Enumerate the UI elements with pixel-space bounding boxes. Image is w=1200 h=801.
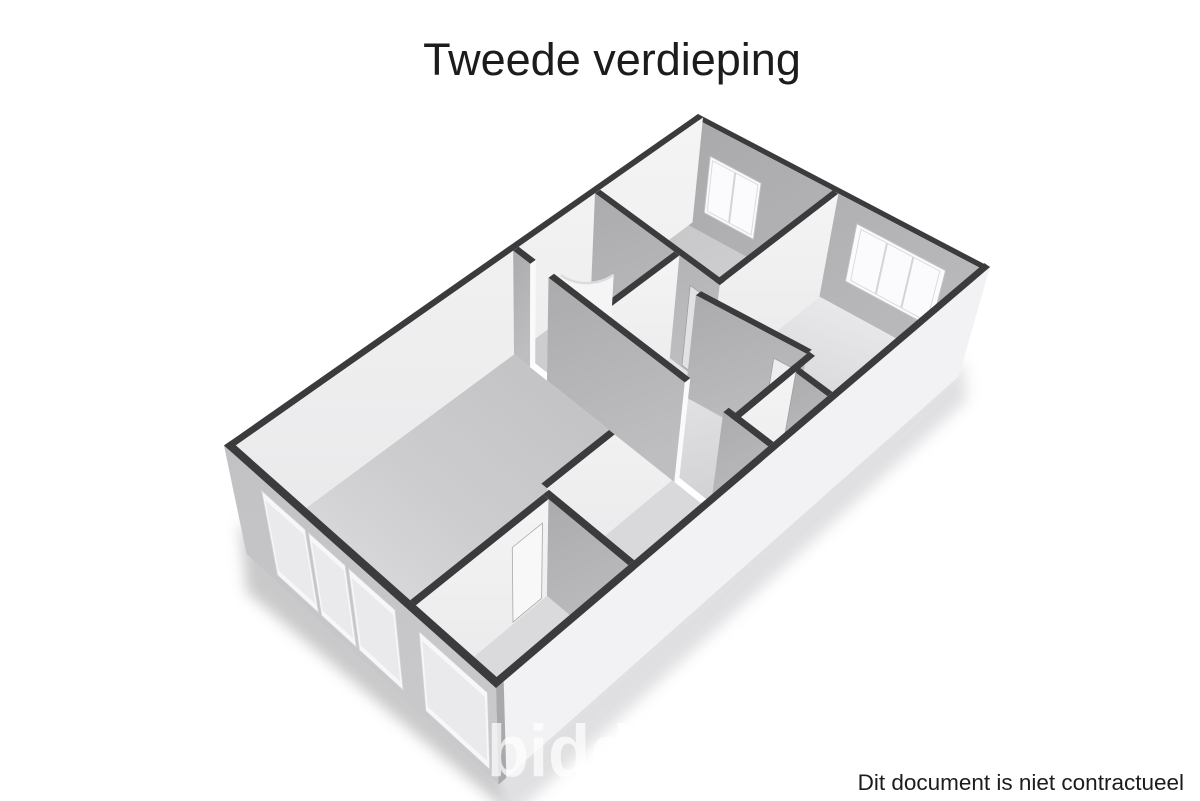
svg-text:Dit document is niet contractu: Dit document is niet contractueel xyxy=(858,770,1184,795)
svg-text:biddit: biddit xyxy=(487,711,674,792)
svg-text:Tweede verdieping: Tweede verdieping xyxy=(423,34,801,85)
